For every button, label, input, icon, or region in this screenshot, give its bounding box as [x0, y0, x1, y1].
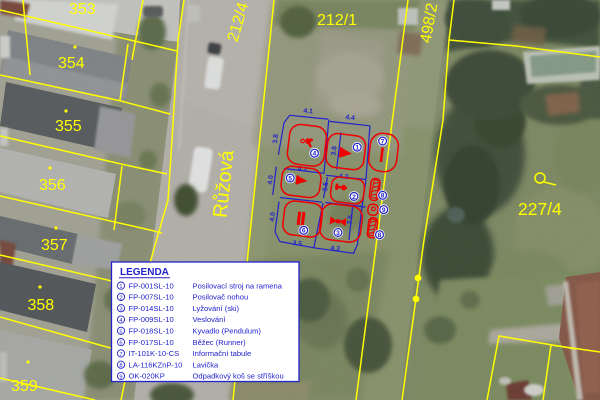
svg-text:Veslování: Veslování — [193, 315, 227, 324]
svg-text:9: 9 — [119, 375, 122, 381]
svg-text:LA-116KZnP-10: LA-116KZnP-10 — [129, 360, 183, 369]
svg-text:227/4: 227/4 — [518, 199, 562, 219]
svg-text:Běžec (Runner): Běžec (Runner) — [193, 338, 247, 347]
svg-text:4.1: 4.1 — [303, 108, 313, 116]
svg-text:FP-007SL-10: FP-007SL-10 — [129, 293, 174, 302]
svg-text:4.0: 4.0 — [267, 175, 275, 185]
svg-text:FP-017SL-10: FP-017SL-10 — [129, 338, 174, 347]
svg-text:357: 357 — [41, 237, 68, 254]
svg-text:2: 2 — [119, 295, 122, 301]
svg-text:1: 1 — [119, 284, 122, 290]
svg-text:5: 5 — [288, 175, 292, 182]
svg-text:Lyžování (ski): Lyžování (ski) — [193, 304, 240, 313]
svg-text:Odpadkový koš se stříškou: Odpadkový koš se stříškou — [193, 372, 284, 381]
svg-text:2: 2 — [352, 194, 356, 201]
svg-text:212/1: 212/1 — [317, 12, 357, 29]
svg-text:358: 358 — [28, 297, 55, 314]
svg-text:4: 4 — [313, 151, 317, 158]
svg-text:4.0: 4.0 — [269, 212, 277, 222]
svg-text:7: 7 — [119, 352, 122, 358]
svg-text:9: 9 — [382, 207, 386, 214]
svg-text:Posilovač nohou: Posilovač nohou — [193, 293, 249, 302]
svg-text:3: 3 — [119, 307, 122, 313]
svg-text:353: 353 — [69, 1, 96, 18]
svg-text:6: 6 — [119, 341, 122, 347]
svg-text:FP-014SL-10: FP-014SL-10 — [129, 304, 174, 313]
svg-text:3.5: 3.5 — [322, 182, 330, 192]
svg-text:8: 8 — [378, 232, 382, 239]
svg-text:3: 3 — [336, 230, 340, 237]
svg-text:4.4: 4.4 — [345, 114, 355, 122]
svg-text:6: 6 — [302, 228, 306, 235]
svg-text:Kyvadlo (Pendulum): Kyvadlo (Pendulum) — [193, 327, 262, 336]
svg-text:LEGENDA: LEGENDA — [120, 267, 169, 278]
svg-text:FP-018SL-10: FP-018SL-10 — [129, 327, 174, 336]
svg-text:355: 355 — [55, 118, 82, 135]
svg-text:Posilovací stroj na ramena: Posilovací stroj na ramena — [193, 281, 283, 290]
svg-text:1: 1 — [355, 145, 359, 152]
svg-text:3.5: 3.5 — [347, 215, 355, 225]
svg-text:359: 359 — [11, 378, 38, 395]
svg-text:Lavička: Lavička — [193, 360, 220, 369]
svg-text:7: 7 — [381, 138, 385, 145]
svg-text:8: 8 — [119, 363, 122, 369]
svg-text:354: 354 — [58, 55, 85, 72]
svg-text:IT-101K-10-CS: IT-101K-10-CS — [129, 349, 180, 358]
svg-text:8: 8 — [381, 193, 385, 200]
svg-text:OK-020KP: OK-020KP — [129, 372, 165, 381]
svg-text:4.3: 4.3 — [330, 245, 341, 253]
svg-text:FP-009SL-10: FP-009SL-10 — [129, 315, 174, 324]
svg-text:FP-001SL-10: FP-001SL-10 — [129, 281, 174, 290]
svg-text:3.8: 3.8 — [331, 146, 339, 156]
svg-text:3.8: 3.8 — [272, 134, 280, 144]
svg-text:356: 356 — [39, 177, 66, 194]
svg-text:3.5: 3.5 — [292, 240, 303, 248]
svg-text:5: 5 — [119, 329, 122, 335]
svg-text:Informační tabule: Informační tabule — [193, 349, 252, 358]
